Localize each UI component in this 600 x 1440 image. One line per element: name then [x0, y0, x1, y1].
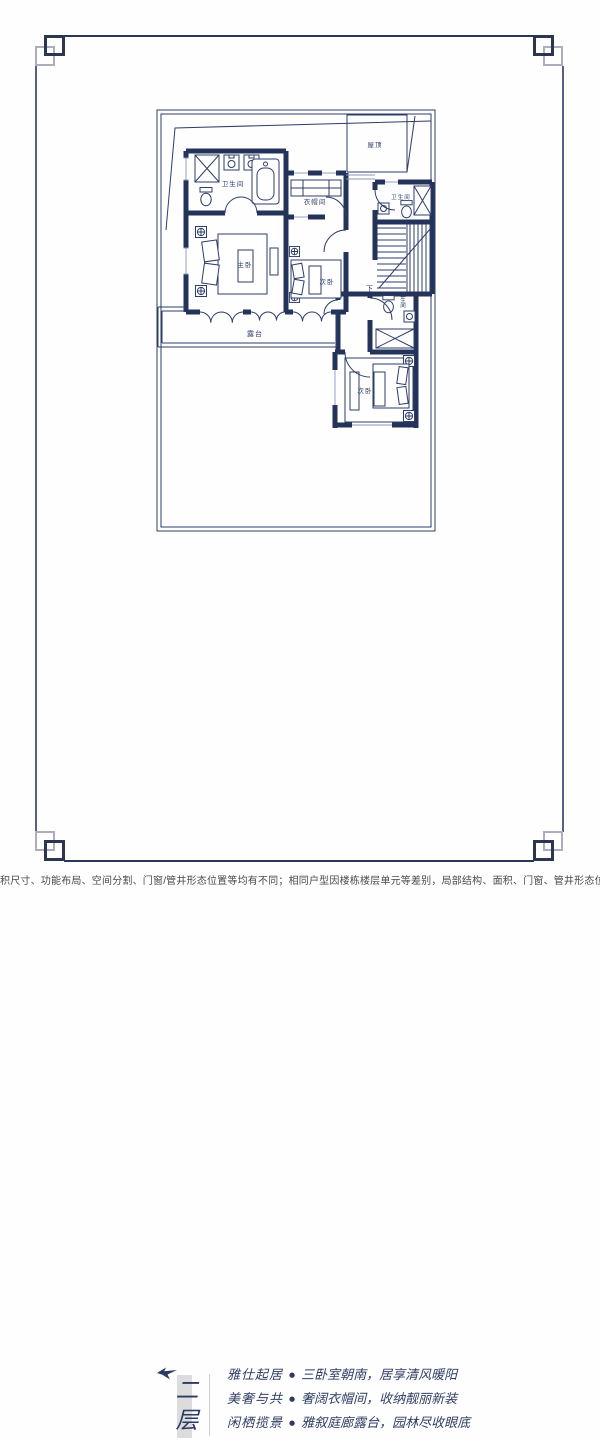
feature-title: 闲栖揽景	[227, 1416, 283, 1431]
bedroom-lower: 次卧	[345, 352, 415, 422]
feature-desc: 三卧室朝南，居享清风暖阳	[301, 1368, 457, 1383]
master-label: 主卧	[238, 260, 253, 269]
feature-desc: 奢阔衣帽间，收纳靓丽新装	[301, 1392, 457, 1407]
corner-ornament-tr-dark	[533, 35, 554, 56]
feature-row: 闲栖揽景●雅叙庭廊露台，园林尽收眼底	[227, 1416, 437, 1431]
bathroom-lower-label: 卫生间	[399, 292, 406, 310]
toilet-icon	[200, 188, 212, 206]
frame-top-line	[64, 35, 534, 37]
feature-list: 雅仕起居●三卧室朝南，居享清风暖阳 美奢与共●奢阔衣帽间，收纳靓丽新装 闲栖揽景…	[227, 1368, 437, 1440]
floor-section: 二层 雅仕起居●三卧室朝南，居享清风暖阳 美奢与共●奢阔衣帽间，收纳靓丽新装 闲…	[0, 680, 600, 780]
nightstand-lamp-icon	[196, 286, 207, 297]
nightstand-lamp-icon	[289, 246, 299, 256]
bedroom-center-label: 次卧	[320, 277, 335, 286]
bathroom-top-label: 卫生间	[222, 179, 245, 188]
floorplan-poster: { "plan": { "labels": { "roof": "屋顶", "b…	[0, 0, 600, 900]
nightstand-lamp-icon	[196, 227, 207, 238]
bathroom-top: 卫生间	[146, 101, 280, 214]
floor-label: 二层	[172, 1378, 195, 1440]
closet-room: 衣帽间	[291, 180, 346, 217]
feature-title: 美奢与共	[227, 1392, 283, 1407]
bathroom-right: 卫生间	[375, 186, 431, 218]
master-bedroom: 主卧	[196, 227, 279, 297]
floor-plan: 屋顶 卫生间 衣帽间 卫生间	[145, 100, 445, 545]
roof-area: 屋顶	[347, 115, 415, 172]
terrace-label: 露台	[247, 329, 263, 338]
terrace: 露台	[158, 300, 338, 347]
bullet-icon: ●	[289, 1371, 295, 1379]
closet-label: 衣帽间	[304, 197, 327, 206]
bullet-icon: ●	[289, 1419, 295, 1427]
bullet-icon: ●	[289, 1395, 295, 1403]
stairs-down-label: 下	[366, 285, 374, 293]
toilet-icon	[401, 201, 412, 218]
feature-row: 雅仕起居●三卧室朝南，居享清风暖阳	[227, 1368, 437, 1383]
feature-title: 雅仕起居	[227, 1368, 283, 1383]
roof-label: 屋顶	[368, 141, 383, 149]
bathroom-lower: 卫生间	[370, 292, 415, 348]
frame-bottom-line	[64, 860, 534, 862]
feature-desc: 雅叙庭廊露台，园林尽收眼底	[301, 1416, 470, 1431]
disclaimer-text: 积尺寸、功能布局、空间分割、门窗/管井形态位置等均有不同；相同户型因楼栋楼层单元…	[0, 872, 600, 887]
corner-ornament-bl-dark	[44, 840, 65, 861]
feature-row: 美奢与共●奢阔衣帽间，收纳靓丽新装	[227, 1392, 437, 1407]
section-divider	[209, 1374, 210, 1436]
nightstand-lamp-icon	[404, 411, 415, 422]
bedroom-center: 次卧	[289, 230, 346, 303]
bathroom-right-label: 卫生间	[391, 193, 411, 201]
bedroom-lower-label: 次卧	[358, 386, 373, 395]
corner-ornament-tl-dark	[44, 35, 65, 56]
corner-ornament-br-dark	[533, 840, 554, 861]
